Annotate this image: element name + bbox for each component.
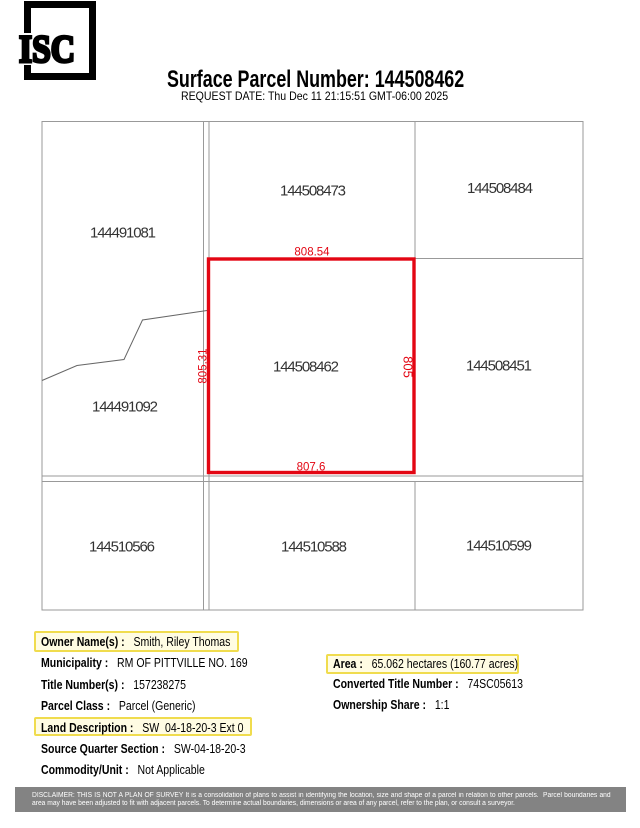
svg-text:144491081: 144491081 <box>90 225 156 242</box>
svg-text:144508484: 144508484 <box>467 180 533 197</box>
svg-text:144491092: 144491092 <box>92 399 158 416</box>
svg-text:144510599: 144510599 <box>466 538 532 555</box>
svg-text:ISC: ISC <box>19 28 75 71</box>
svg-text:807.6: 807.6 <box>297 462 326 474</box>
svg-text:805.31: 805.31 <box>197 348 209 383</box>
svg-text:144508451: 144508451 <box>466 358 532 375</box>
svg-text:144508462: 144508462 <box>273 359 339 376</box>
svg-text:144510566: 144510566 <box>89 539 155 556</box>
svg-text:808.54: 808.54 <box>294 247 330 259</box>
svg-text:144510588: 144510588 <box>281 539 347 556</box>
svg-text:144508473: 144508473 <box>280 183 346 200</box>
svg-text:805: 805 <box>401 356 416 378</box>
